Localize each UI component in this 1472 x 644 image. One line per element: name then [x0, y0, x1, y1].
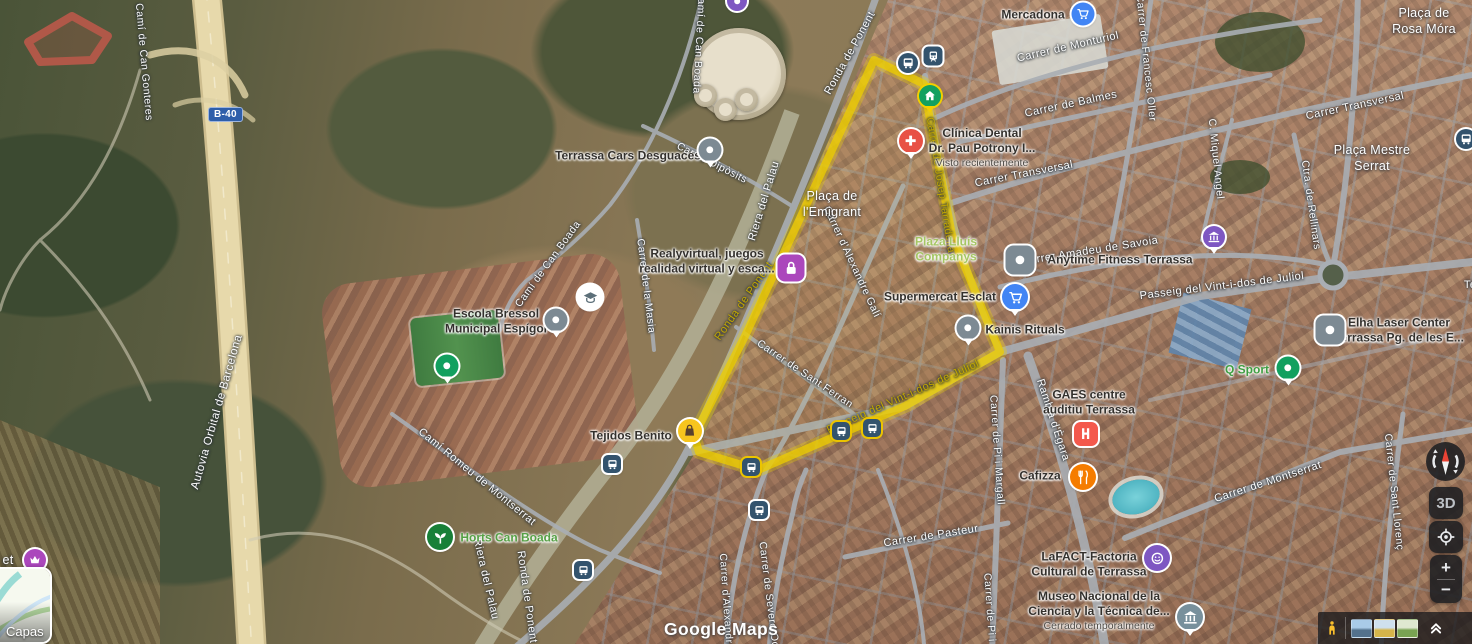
dot-marker[interactable] [545, 309, 568, 332]
area-label: et [2, 552, 13, 568]
area-label: Plaça MestreSerrat [1334, 142, 1411, 175]
dot-marker[interactable] [1277, 357, 1300, 380]
poi-label[interactable]: Tejidos Benito [590, 428, 672, 443]
bus-marker[interactable] [603, 455, 621, 473]
tilt-3d-label: 3D [1436, 495, 1455, 512]
poi-label[interactable]: Escola BressolMunicipal Espígol [445, 307, 547, 338]
letterH-marker[interactable] [1074, 422, 1098, 446]
dot-marker[interactable] [1006, 246, 1035, 275]
area-label: Plaça del'Emigrant [803, 188, 861, 221]
compass-control[interactable] [1425, 441, 1466, 482]
red-roof-building [28, 16, 108, 62]
poi-label[interactable]: Clínica DentalDr. Pau Potrony I...Visto … [929, 126, 1036, 170]
zoom-out-button[interactable]: − [1430, 580, 1462, 602]
pegman-icon[interactable] [1324, 616, 1340, 640]
poi-label[interactable]: Mercadona [1001, 7, 1064, 22]
bus-marker[interactable] [742, 458, 760, 476]
roads-overlay [0, 0, 1472, 644]
photo-thumbnail[interactable] [1374, 619, 1395, 638]
bus-marker[interactable] [1456, 129, 1472, 149]
cart-marker[interactable] [1002, 284, 1028, 310]
poi-label[interactable]: Kainis Rituals [985, 322, 1064, 337]
poi-label[interactable]: Q Sport [1225, 362, 1269, 377]
poi-label[interactable]: LaFACT-FactoriaCultural de Terrassa [1031, 550, 1146, 581]
home-marker[interactable] [919, 85, 941, 107]
chevron-up-icon[interactable] [1426, 618, 1446, 638]
poi-label[interactable]: Elha Laser CenterTerrassa Pg. de les E..… [1334, 316, 1464, 347]
bus-marker[interactable] [574, 561, 592, 579]
bank-marker[interactable] [1177, 604, 1203, 630]
masks-marker[interactable] [1144, 545, 1170, 571]
poi-label[interactable]: GAES centreauditiu Terrassa [1043, 388, 1135, 419]
sprout-marker[interactable] [427, 524, 453, 550]
highway-b40 [150, 0, 253, 644]
my-location-button[interactable] [1429, 521, 1463, 553]
zoom-controls: + − [1430, 555, 1462, 603]
imagery-bar [1318, 612, 1472, 644]
dot-marker[interactable] [1316, 316, 1345, 345]
forkknife-marker[interactable] [1070, 464, 1096, 490]
bank-marker[interactable] [1203, 226, 1225, 248]
zoom-in-button[interactable]: + [1430, 557, 1462, 579]
poi-label[interactable]: Realyvirtual, juegosrealidad virtual y e… [639, 247, 774, 278]
my-location-icon [1436, 527, 1456, 547]
dot-marker[interactable] [436, 355, 459, 378]
lock-marker[interactable] [778, 255, 805, 282]
roundabout [1320, 262, 1346, 288]
highway-route-badge: B-40 [208, 107, 243, 122]
cross-marker[interactable] [899, 129, 923, 153]
poi-label[interactable]: Museo Nacional de laCiencia y la Técnica… [1028, 589, 1169, 633]
photo-thumbnail[interactable] [1397, 619, 1418, 638]
area-label: Plaça deRosa Móra [1392, 5, 1456, 38]
bus-marker[interactable] [898, 53, 918, 73]
tilt-3d-button[interactable]: 3D [1429, 487, 1463, 519]
photo-thumbnails [1351, 619, 1418, 638]
layers-label: Capas [6, 624, 44, 639]
grad-marker[interactable] [578, 285, 603, 310]
google-maps-satellite-view: Camí de Can GonteresAutovia Orbital de B… [0, 0, 1472, 644]
layers-control[interactable]: Capas [0, 567, 52, 644]
dot-marker[interactable] [957, 317, 980, 340]
dot-marker[interactable] [699, 139, 722, 162]
divider [1345, 617, 1346, 639]
poi-label[interactable]: Anytime Fitness Terrassa [1047, 252, 1192, 267]
train-marker[interactable] [924, 47, 943, 66]
cart-marker[interactable] [1072, 3, 1095, 26]
poi-label[interactable]: Terrassa Cars Desguaces [555, 148, 701, 163]
poi-label[interactable]: Horts Can Boada [460, 530, 557, 545]
bag-marker[interactable] [678, 419, 702, 443]
poi-label[interactable]: Supermercat Esclat [884, 289, 996, 304]
bus-marker[interactable] [863, 419, 881, 437]
photo-thumbnail[interactable] [1351, 619, 1372, 638]
poi-label[interactable]: Cafizza [1019, 468, 1060, 483]
bus-marker[interactable] [832, 422, 850, 440]
poi-label[interactable]: Plaza LluísCompanys [915, 235, 977, 266]
google-maps-logo: Google Maps [664, 619, 778, 640]
bus-marker[interactable] [750, 501, 768, 519]
